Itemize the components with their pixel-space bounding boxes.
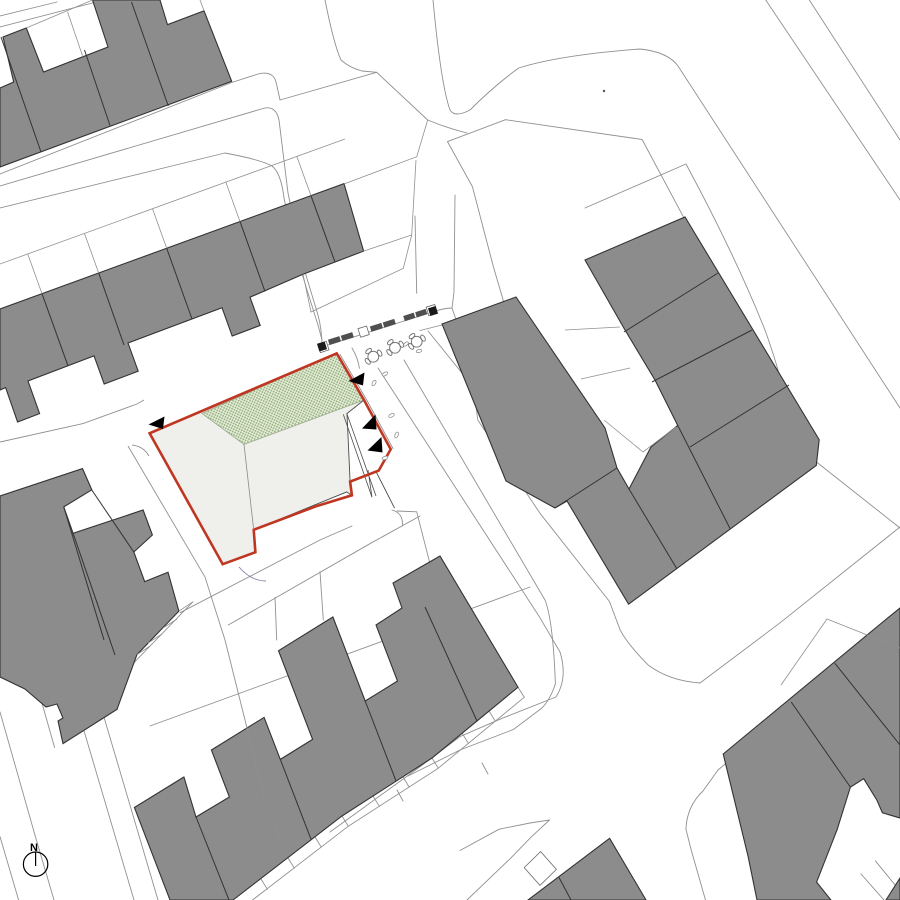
svg-text:N: N <box>30 842 38 854</box>
